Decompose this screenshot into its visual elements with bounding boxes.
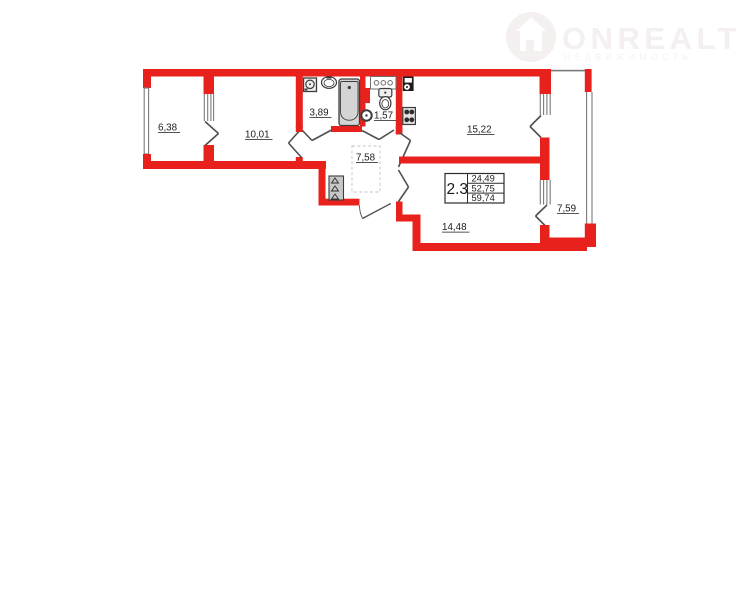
svg-text:ONREALT: ONREALT [562,21,738,56]
svg-text:7,59: 7,59 [557,204,576,215]
svg-text:59,74: 59,74 [472,193,495,203]
svg-text:НЕДВИЖИМОСТЬ: НЕДВИЖИМОСТЬ [564,52,692,62]
svg-text:24,49: 24,49 [472,174,495,184]
svg-text:2.3: 2.3 [447,181,469,198]
svg-text:52,75: 52,75 [472,183,495,193]
svg-text:1,57: 1,57 [374,111,393,122]
svg-text:3,89: 3,89 [310,108,329,119]
svg-text:10,01: 10,01 [245,130,270,141]
svg-text:6,38: 6,38 [158,123,178,134]
svg-text:14,48: 14,48 [442,222,467,233]
svg-text:7,58: 7,58 [356,153,376,164]
svg-text:15,22: 15,22 [467,125,492,136]
